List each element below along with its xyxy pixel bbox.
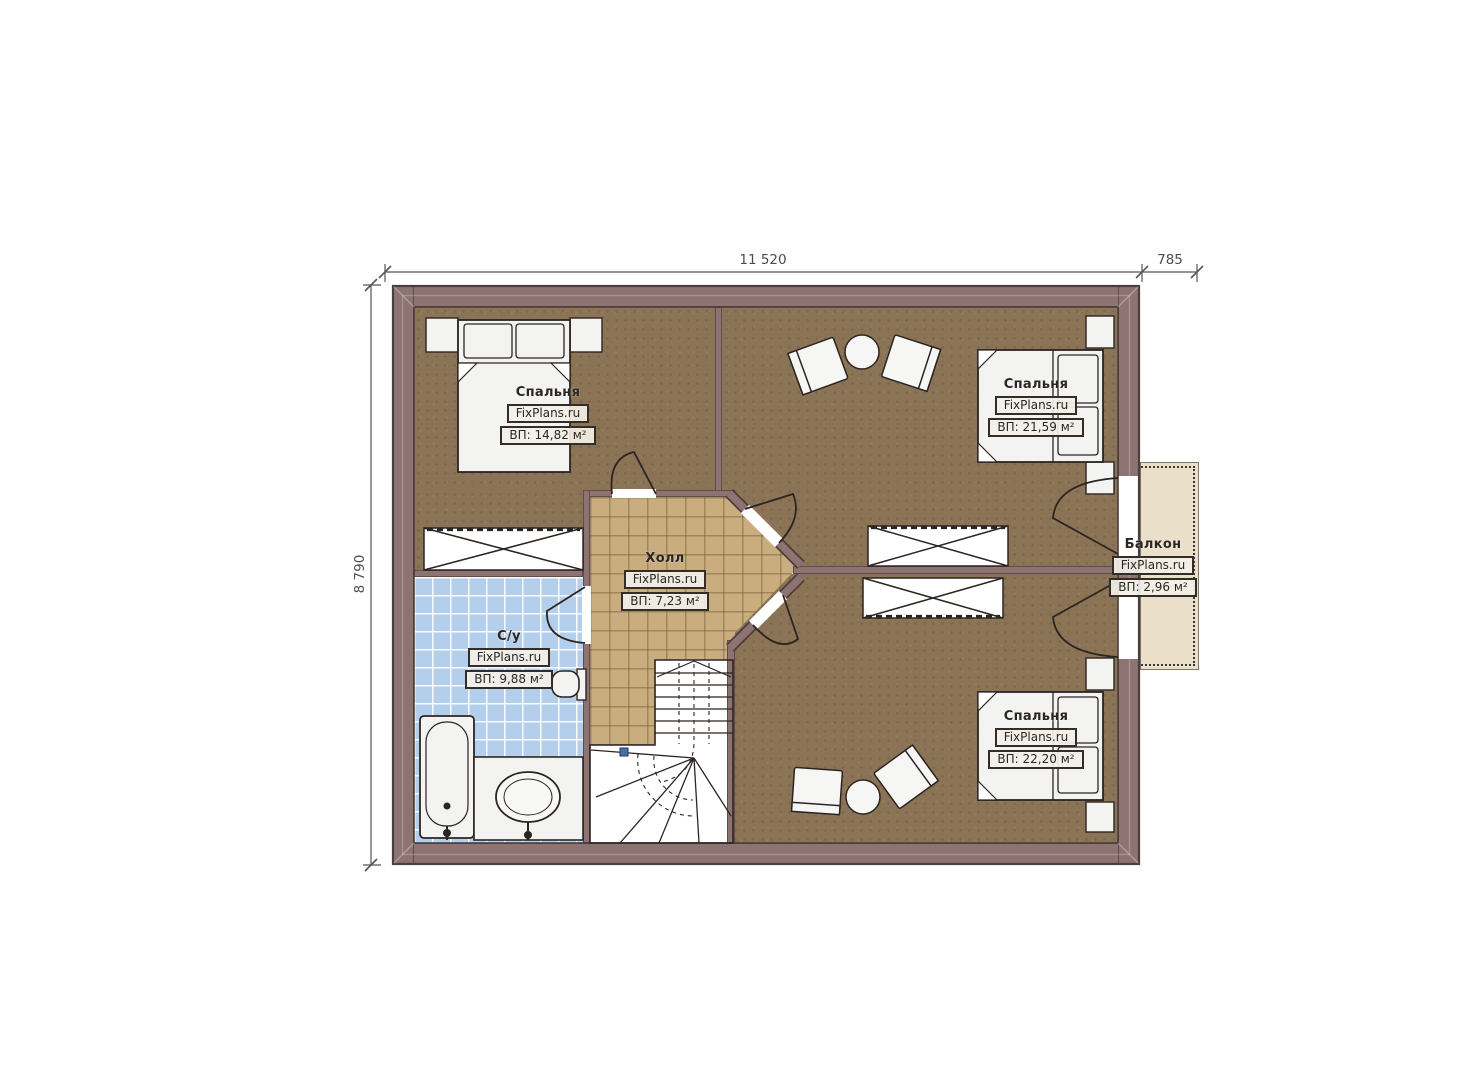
- pillow-icon: [516, 324, 564, 358]
- vanity-sink-icon: [474, 757, 583, 840]
- room-label-balcony: Балкон FixPlans.ru ВП: 2,96 м²: [1098, 538, 1208, 597]
- chair-icon: [874, 745, 939, 809]
- room-label-bedroom-top-left: Спальня FixPlans.ru ВП: 14,82 м²: [492, 386, 604, 445]
- nightstand-icon: [1086, 802, 1114, 832]
- floor-plan-canvas: 11 520 785 8 790 Спальня FixPlans.ru ВП:…: [0, 0, 1473, 1080]
- room-label-bedroom-top-right: Спальня FixPlans.ru ВП: 21,59 м²: [980, 378, 1092, 437]
- area-box: ВП: 22,20 м²: [988, 750, 1083, 769]
- wardrobe-bedroom1-icon: [424, 528, 583, 570]
- bathroom-fixtures: [420, 669, 586, 840]
- sitting-group-top: [788, 335, 941, 395]
- sitting-group-bottom: [792, 745, 939, 815]
- room-name: Спальня: [1004, 378, 1068, 393]
- wall-hall-chamfers: [729, 493, 801, 648]
- room-label-bedroom-bottom-right: Спальня FixPlans.ru ВП: 22,20 м²: [980, 710, 1092, 769]
- area-box: ВП: 14,82 м²: [500, 426, 595, 445]
- watermark-box: FixPlans.ru: [995, 728, 1078, 747]
- nightstand-icon: [570, 318, 602, 352]
- round-table-icon: [845, 335, 879, 369]
- watermark-box: FixPlans.ru: [1112, 556, 1195, 575]
- watermark-box: FixPlans.ru: [995, 396, 1078, 415]
- watermark-box: FixPlans.ru: [624, 570, 707, 589]
- room-name: Холл: [645, 552, 684, 567]
- nightstand-icon: [426, 318, 458, 352]
- plan-vector-layer: [0, 0, 1473, 1080]
- chair-icon: [881, 335, 940, 392]
- watermark-box: FixPlans.ru: [507, 404, 590, 423]
- stair-winder-rays: [591, 750, 731, 843]
- pillow-icon: [464, 324, 512, 358]
- watermark-box: FixPlans.ru: [468, 648, 551, 667]
- area-box: ВП: 21,59 м²: [988, 418, 1083, 437]
- chair-icon: [792, 767, 843, 814]
- bathtub-icon: [420, 716, 474, 840]
- room-name: С/у: [497, 630, 521, 645]
- area-box: ВП: 2,96 м²: [1109, 578, 1197, 597]
- staircase-icon: [590, 660, 733, 843]
- dimension-top-width: 11 520: [698, 252, 828, 268]
- nightstand-icon: [1086, 658, 1114, 690]
- room-name: Спальня: [1004, 710, 1068, 725]
- chair-icon: [788, 337, 848, 395]
- room-name: Балкон: [1125, 538, 1182, 553]
- door-bedroom1-icon: [611, 452, 656, 494]
- room-name: Спальня: [516, 386, 580, 401]
- room-label-hall: Холл FixPlans.ru ВП: 7,23 м²: [609, 552, 721, 611]
- stair-marker: [620, 748, 628, 756]
- dimension-balcony-width: 785: [1140, 252, 1200, 268]
- area-box: ВП: 7,23 м²: [621, 592, 709, 611]
- room-label-bathroom: С/у FixPlans.ru ВП: 9,88 м²: [453, 630, 565, 689]
- nightstand-icon: [1086, 316, 1114, 348]
- round-table-icon: [846, 780, 880, 814]
- area-box: ВП: 9,88 м²: [465, 670, 553, 689]
- dimension-left-height: 8 790: [352, 539, 368, 609]
- wardrobe-bedroom3-icon: [863, 578, 1003, 618]
- wardrobe-bedroom2-icon: [868, 526, 1008, 566]
